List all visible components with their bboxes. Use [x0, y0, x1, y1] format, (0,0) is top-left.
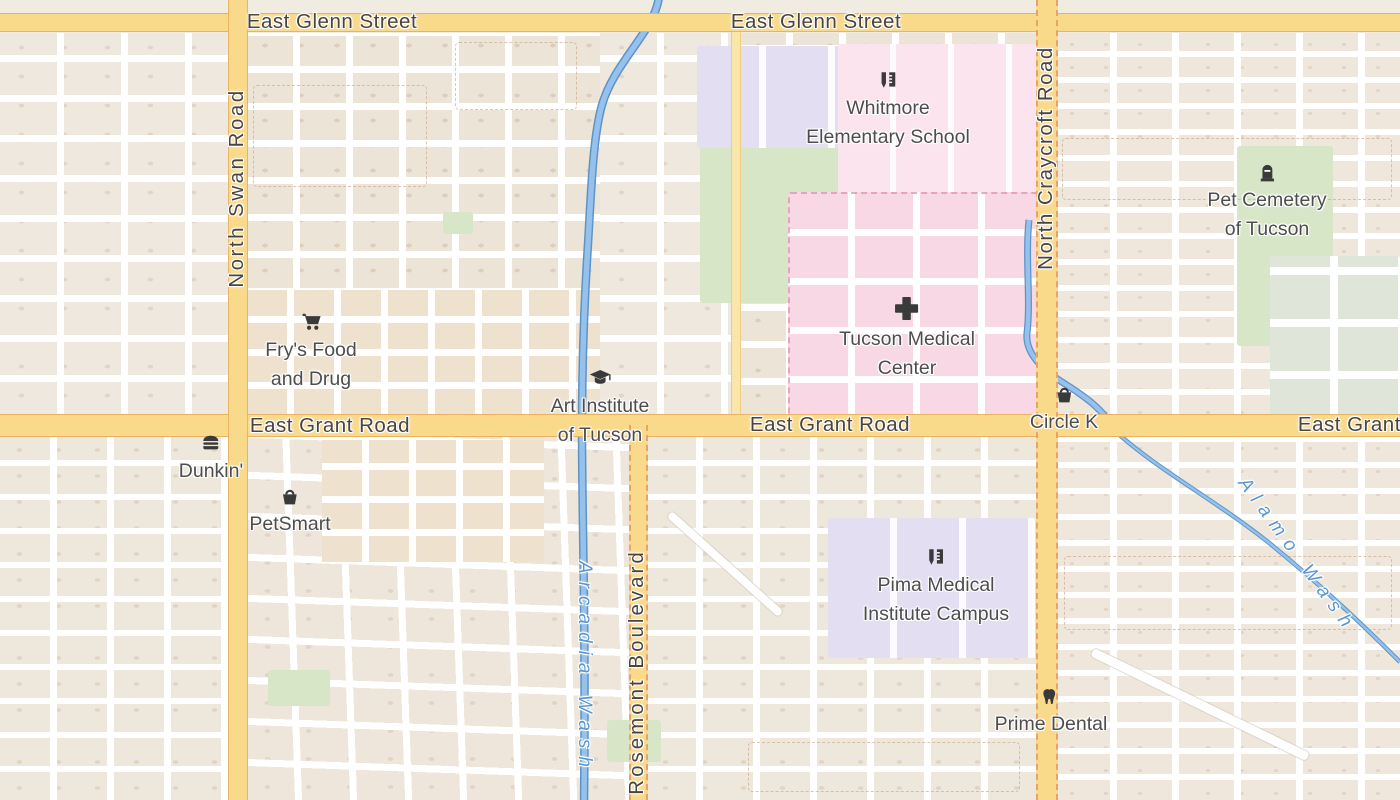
poi-dunkin: Dunkin' [179, 432, 243, 486]
poi-circle-k: Circle K [1030, 384, 1098, 437]
poi-label: Fry's Food [265, 336, 357, 365]
road-label: East Glenn Street [247, 10, 417, 34]
school-icon [877, 69, 899, 91]
poi-art-institute-of-tucson: Art Institute of Tucson [551, 367, 650, 450]
poi-tucson-medical-center: Tucson Medical Center [839, 295, 975, 383]
waterway-label: Arcadia Wash [573, 561, 595, 775]
road-label: Rosemont Boulevard [625, 549, 649, 794]
poi-frys-food-and-drug: Fry's Food and Drug [265, 311, 357, 394]
poi-label: Pima Medical [877, 571, 994, 600]
poi-label: Institute Campus [863, 600, 1009, 629]
poi-label: Prime Dental [995, 710, 1108, 739]
road-label: East Glenn Street [731, 10, 901, 34]
poi-label: and Drug [271, 365, 351, 394]
poi-label: Elementary School [806, 123, 970, 152]
poi-prime-dental: Prime Dental [995, 686, 1108, 739]
poi-label: PetSmart [249, 510, 330, 539]
poi-petsmart: PetSmart [249, 486, 330, 539]
tooth-icon [1041, 686, 1062, 707]
hospital-cross-icon [894, 295, 921, 322]
poi-pet-cemetery-of-tucson: Pet Cemetery of Tucson [1207, 161, 1326, 244]
road-label: East Grant Road [250, 414, 410, 438]
poi-label: Pet Cemetery [1207, 186, 1326, 215]
poi-label: Whitmore [846, 94, 929, 123]
poi-whitmore-elementary-school: Whitmore Elementary School [806, 69, 970, 152]
road-east-glenn-street [0, 13, 1400, 32]
waterways-layer [0, 0, 1400, 800]
shopping-cart-icon [300, 311, 322, 333]
fast-food-icon [200, 432, 222, 454]
map-canvas[interactable]: East Glenn Street East Glenn Street East… [0, 0, 1400, 800]
poi-label: of Tucson [558, 421, 643, 450]
basket-icon [1053, 384, 1074, 405]
road-label: North Craycroft Road [1034, 46, 1058, 270]
road-collector [731, 31, 741, 415]
poi-label: Dunkin' [179, 457, 243, 486]
road-label: East Grant Road [1298, 413, 1400, 437]
basket-icon [280, 486, 301, 507]
poi-label: Center [878, 354, 937, 383]
poi-label: Art Institute [551, 392, 650, 421]
road-label: East Grant Road [750, 413, 910, 437]
poi-pima-medical-institute-campus: Pima Medical Institute Campus [863, 546, 1009, 629]
grave-icon [1256, 161, 1278, 183]
poi-label: of Tucson [1225, 215, 1310, 244]
poi-label: Circle K [1030, 408, 1098, 437]
graduation-cap-icon [589, 367, 612, 389]
poi-label: Tucson Medical [839, 325, 975, 354]
school-icon [925, 546, 947, 568]
road-label: North Swan Road [225, 88, 249, 287]
